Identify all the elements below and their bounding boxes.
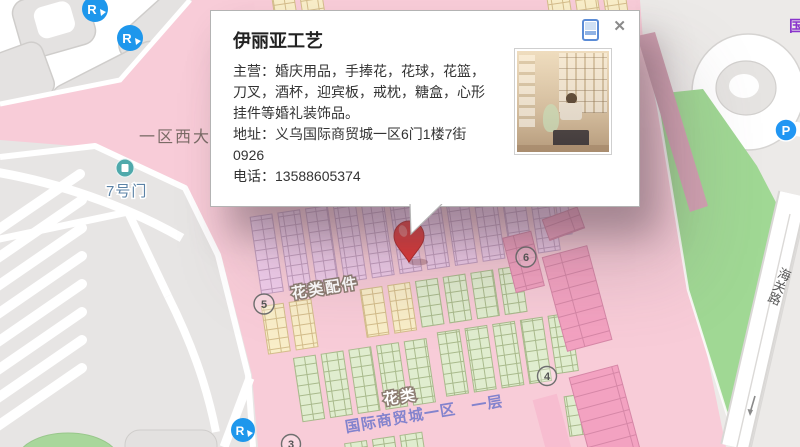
close-icon[interactable]: ✕ [613, 17, 626, 37]
phone-icon-screen [585, 22, 596, 30]
gate-marker-5[interactable]: 5 [254, 294, 274, 314]
gate-marker-4[interactable]: 4 [538, 367, 557, 386]
shop-photo-art [517, 51, 609, 152]
phone-label: 电话： [233, 168, 275, 184]
gate-marker-6[interactable]: 6 [516, 247, 536, 267]
entrance-icon[interactable]: R [231, 418, 255, 442]
phone-icon-keys [585, 31, 596, 35]
gate-number: 3 [288, 439, 294, 447]
gate-marker-3[interactable]: 3 [282, 435, 301, 447]
photo-tint [517, 51, 609, 152]
shop-details: 主营：婚庆用品，手捧花，花球，花篮，刀叉，酒杯，迎宾板，戒枕，糖盒，心形挂件等婚… [233, 61, 495, 187]
gate-number: 5 [261, 299, 267, 311]
entrance-icon[interactable]: R [117, 25, 143, 51]
info-window: 伊丽亚工艺 ✕ 主营：婚庆用品，手捧花，花球，花篮，刀叉，酒杯，迎宾板，戒枕，糖… [210, 10, 640, 207]
gate7-icon[interactable] [116, 159, 134, 177]
shop-title: 伊丽亚工艺 [233, 27, 323, 53]
phone-icon[interactable] [582, 19, 599, 41]
map-viewport: 3 4 5 6 R R R P 一区西大厅 7号门 花类配件 花类 国 [0, 0, 800, 447]
shop-photo[interactable] [514, 48, 612, 155]
entrance-glyph: R [87, 2, 97, 17]
gate-number: 4 [544, 371, 551, 383]
entrance-glyph: R [236, 424, 245, 438]
business-label: 主营： [233, 63, 275, 79]
address-label: 地址： [233, 126, 275, 142]
gate-number: 6 [523, 252, 529, 264]
parking-glyph: P [782, 123, 791, 138]
info-window-tail [404, 204, 444, 236]
entrance-glyph: R [122, 31, 132, 46]
business-line: 主营：婚庆用品，手捧花，花球，花篮，刀叉，酒杯，迎宾板，戒枕，糖盒，心形挂件等婚… [233, 61, 495, 124]
label-edge-partial: 国 [789, 18, 800, 35]
phone-line: 电话：13588605374 [233, 166, 495, 187]
address-line: 地址：义乌国际商贸城一区6门1楼7街0926 [233, 124, 495, 166]
label-gate7: 7号门 [106, 183, 147, 200]
phone-text: 13588605374 [275, 168, 361, 184]
parking-icon[interactable]: P [775, 119, 797, 141]
